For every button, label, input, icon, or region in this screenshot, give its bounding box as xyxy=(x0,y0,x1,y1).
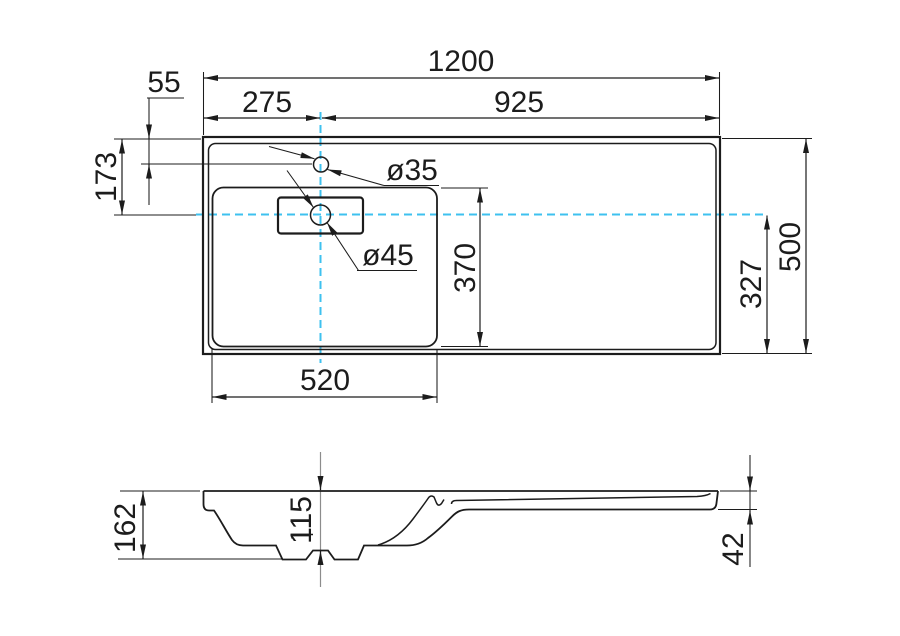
dim-center-from-front: 327 xyxy=(735,216,768,354)
dim-tap-from-left: 275 xyxy=(204,86,320,119)
top-view: 1200 925 275 55 173 xyxy=(90,45,812,403)
dim-right-span-label: 925 xyxy=(494,86,544,119)
dim-basin-front-back: 370 xyxy=(441,188,488,347)
section-view: 162 115 42 xyxy=(109,452,757,587)
dim-center-from-front-label: 327 xyxy=(735,259,768,309)
dim-deck-edge-height-label: 42 xyxy=(717,532,750,565)
dim-deck-edge-height: 42 xyxy=(717,455,757,567)
dim-center-from-back-label: 173 xyxy=(90,152,123,202)
leader-line xyxy=(287,171,314,208)
dim-overall-depth-label: 500 xyxy=(774,222,807,272)
tap-hole-dia-label: ø35 xyxy=(386,154,438,187)
dim-basin-front-back-label: 370 xyxy=(449,243,482,293)
dim-center-from-back: 173 xyxy=(90,139,201,215)
dim-overall-height: 162 xyxy=(109,491,283,559)
bowl-inner-right-wall xyxy=(378,496,444,545)
leader-line xyxy=(327,223,359,271)
dim-tap-from-back-label: 55 xyxy=(147,66,180,99)
dim-basin-width-label: 520 xyxy=(300,364,350,397)
deck-front-edge-line xyxy=(452,494,711,505)
washbasin-technical-drawing: 1200 925 275 55 173 xyxy=(0,0,900,636)
dim-overall-height-label: 162 xyxy=(109,503,142,553)
leader-line xyxy=(269,147,315,159)
section-profile xyxy=(204,491,719,560)
dim-tap-from-left-label: 275 xyxy=(242,86,292,119)
dim-overall-width-label: 1200 xyxy=(428,45,495,78)
dim-bowl-depth-label: 115 xyxy=(285,496,318,544)
dim-right-span: 925 xyxy=(322,86,719,119)
dim-basin-width: 520 xyxy=(212,349,437,403)
leader-line xyxy=(328,170,385,186)
drain-dia-label: ø45 xyxy=(362,239,414,272)
drawing-sheet: 1200 925 275 55 173 xyxy=(0,0,900,636)
